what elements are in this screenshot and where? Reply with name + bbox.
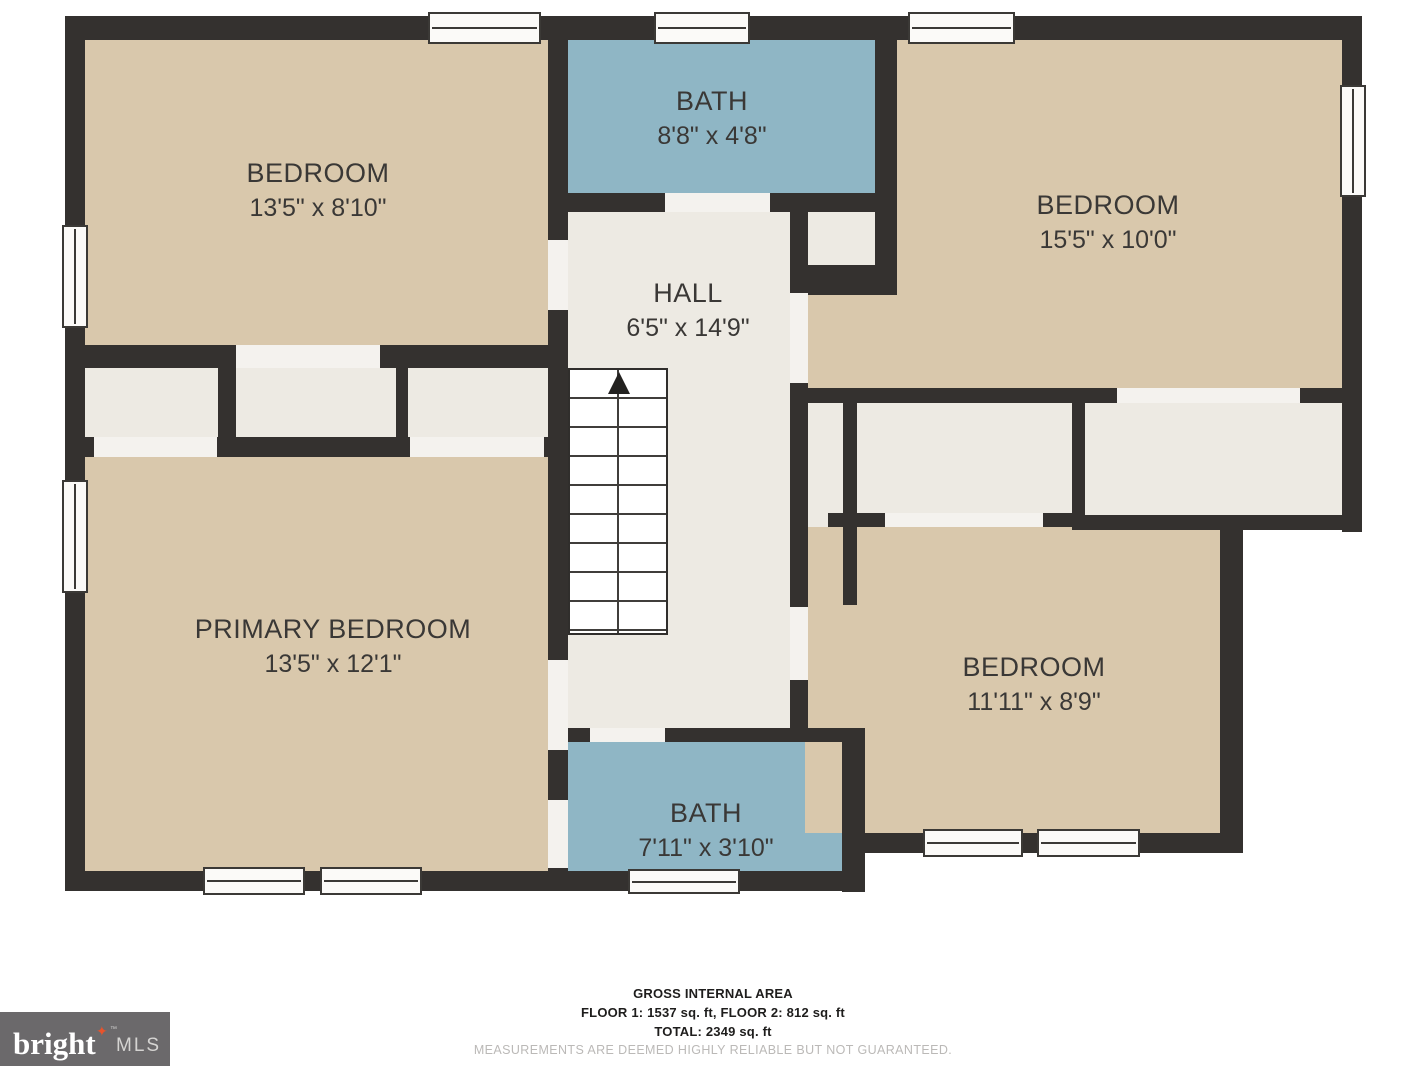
window-bottom-bath xyxy=(628,869,740,894)
room-dims: 13'5" x 12'1" xyxy=(195,650,472,679)
room-name: HALL xyxy=(626,278,749,309)
window-top-bath xyxy=(654,12,750,44)
wall-alcove-bottom xyxy=(790,265,897,295)
door-opening-bedroom-bottom-right xyxy=(790,607,808,680)
label-bath-bottom: BATH 7'11" x 3'10" xyxy=(638,798,773,863)
door-opening-closet-left xyxy=(94,437,217,457)
logo-suffix-text: MLS xyxy=(116,1036,161,1055)
room-dims: 8'8" x 4'8" xyxy=(657,122,766,151)
trademark-symbol: ™ xyxy=(110,1026,117,1033)
stairs-up-arrow-icon xyxy=(608,372,630,394)
door-opening-bath-top xyxy=(665,193,770,212)
floor-plan: BEDROOM 13'5" x 8'10" BATH 8'8" x 4'8" B… xyxy=(0,0,1426,1066)
door-opening-bedroom-top-right xyxy=(790,293,808,383)
window-bottom-right-2 xyxy=(1037,829,1140,857)
star-icon: ✦ xyxy=(96,1024,108,1038)
staircase xyxy=(568,368,668,635)
footer-floors: FLOOR 1: 1537 sq. ft, FLOOR 2: 812 sq. f… xyxy=(474,1003,952,1022)
room-dims: 6'5" x 14'9" xyxy=(626,314,749,343)
room-bedroom-top-right-ext xyxy=(805,295,900,388)
room-dims: 11'11" x 8'9" xyxy=(962,688,1105,717)
window-top-2 xyxy=(908,12,1015,44)
door-opening-closet-right xyxy=(410,437,544,457)
label-hall: HALL 6'5" x 14'9" xyxy=(626,278,749,343)
wall-right-closet-divider xyxy=(1072,403,1085,527)
room-dims: 13'5" x 8'10" xyxy=(246,194,389,223)
room-dims: 15'5" x 10'0" xyxy=(1036,226,1179,255)
window-bottom-1 xyxy=(203,867,305,895)
footer-disclaimer: MEASUREMENTS ARE DEEMED HIGHLY RELIABLE … xyxy=(474,1041,952,1059)
window-right xyxy=(1340,85,1366,197)
wall-right-closet-left xyxy=(843,395,857,605)
window-left-2 xyxy=(62,480,88,593)
door-opening-right-closet-l xyxy=(885,513,1043,527)
closet-left xyxy=(85,368,218,437)
room-name: BATH xyxy=(657,86,766,117)
wall-perimeter-right-lower xyxy=(1220,515,1243,853)
bright-mls-logo: bright ✦ ™ MLS xyxy=(0,1012,170,1066)
room-name: BEDROOM xyxy=(962,652,1105,683)
closet-right-band-left xyxy=(857,403,1072,513)
label-bedroom-top-left: BEDROOM 13'5" x 8'10" xyxy=(246,158,389,223)
label-bedroom-top-right: BEDROOM 15'5" x 10'0" xyxy=(1036,190,1179,255)
window-bottom-2 xyxy=(320,867,422,895)
window-left-1 xyxy=(62,225,88,328)
closet-right-band-right xyxy=(1085,403,1342,515)
wall-closet-divider-2 xyxy=(396,345,408,457)
label-bath-top: BATH 8'8" x 4'8" xyxy=(657,86,766,151)
window-bottom-right-1 xyxy=(923,829,1023,857)
wall-closet-divider-1 xyxy=(218,345,236,457)
footer-title: GROSS INTERNAL AREA xyxy=(474,984,952,1003)
door-opening-bath-bottom xyxy=(590,728,665,742)
door-opening-right-closet-r xyxy=(1117,388,1300,403)
room-dims: 7'11" x 3'10" xyxy=(638,834,773,863)
room-name: BEDROOM xyxy=(1036,190,1179,221)
wall-perimeter-bottom xyxy=(65,871,865,891)
window-top-1 xyxy=(428,12,541,44)
door-opening-bedroom-top-left xyxy=(548,240,568,310)
logo-brand-text: bright xyxy=(13,1028,96,1059)
room-name: PRIMARY BEDROOM xyxy=(195,614,472,645)
door-opening-closet-middle xyxy=(236,345,380,368)
gross-internal-area-note: GROSS INTERNAL AREA FLOOR 1: 1537 sq. ft… xyxy=(474,984,952,1059)
label-bedroom-bottom-right: BEDROOM 11'11" x 8'9" xyxy=(962,652,1105,717)
label-primary-bedroom: PRIMARY BEDROOM 13'5" x 12'1" xyxy=(195,614,472,679)
wall-bath-bottom-right xyxy=(842,728,865,892)
wall-right-band-bottom xyxy=(1072,515,1362,530)
door-opening-primary-to-bath xyxy=(548,800,568,868)
hall-alcove xyxy=(805,212,877,265)
wall-bedroom-top-right-left xyxy=(875,38,897,295)
room-name: BEDROOM xyxy=(246,158,389,189)
footer-total: TOTAL: 2349 sq. ft xyxy=(474,1022,952,1041)
closet-middle xyxy=(236,368,396,437)
room-name: BATH xyxy=(638,798,773,829)
door-opening-primary-bedroom xyxy=(548,660,568,750)
closet-right xyxy=(408,368,548,437)
